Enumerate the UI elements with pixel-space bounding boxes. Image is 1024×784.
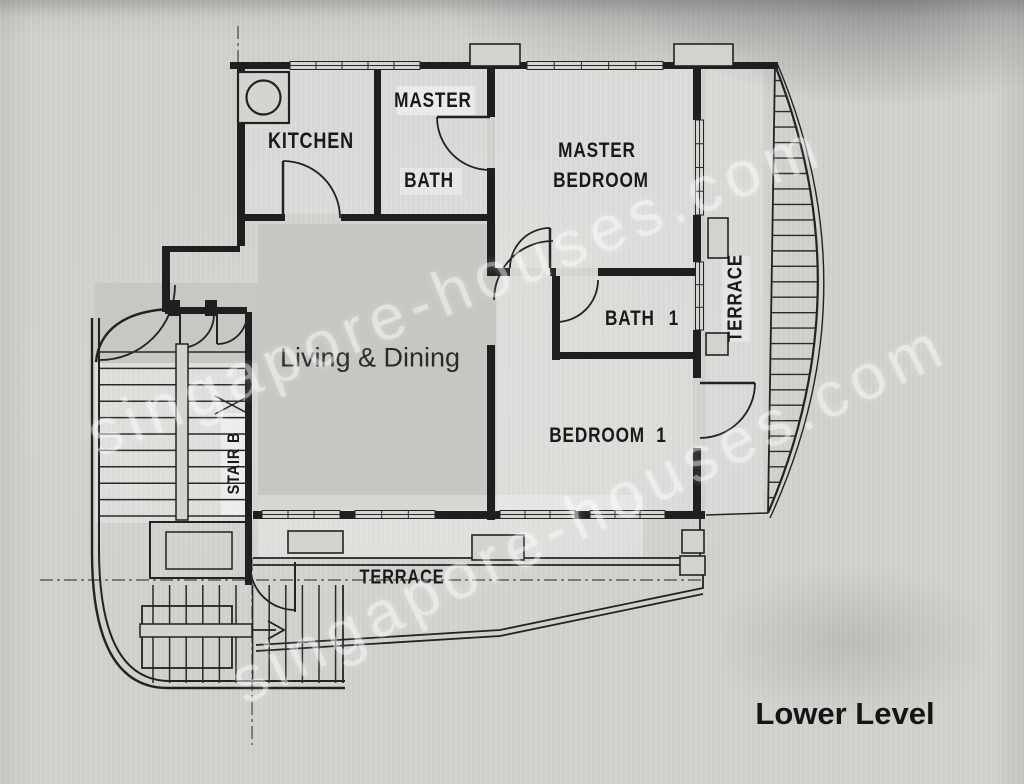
label-stair-b: STAIR B (224, 432, 244, 495)
label-master-bedroom-1: MASTER (558, 139, 636, 163)
scanned-floor-plan: KITCHEN MASTER BATH MASTER BEDROOM BATH … (0, 0, 1024, 784)
label-bedroom-1: BEDROOM 1 (549, 424, 666, 448)
label-master-bath-2: BATH (404, 169, 454, 193)
label-living-dining: Living & Dining (280, 343, 460, 374)
label-master-bath-1: MASTER (394, 89, 472, 113)
terrace-hatch-lines (768, 81, 818, 498)
terrace-bottom-outline (253, 558, 703, 651)
label-terrace-right: TERRACE (725, 254, 748, 342)
label-terrace-bottom: TERRACE (359, 567, 444, 590)
floor-plan-linework (0, 0, 1024, 784)
page-title: Lower Level (755, 696, 934, 732)
kitchen-sink-icon (238, 72, 289, 123)
label-master-bedroom-2: BEDROOM (553, 169, 649, 193)
label-kitchen: KITCHEN (268, 128, 354, 154)
label-bath-1: BATH 1 (605, 307, 679, 331)
